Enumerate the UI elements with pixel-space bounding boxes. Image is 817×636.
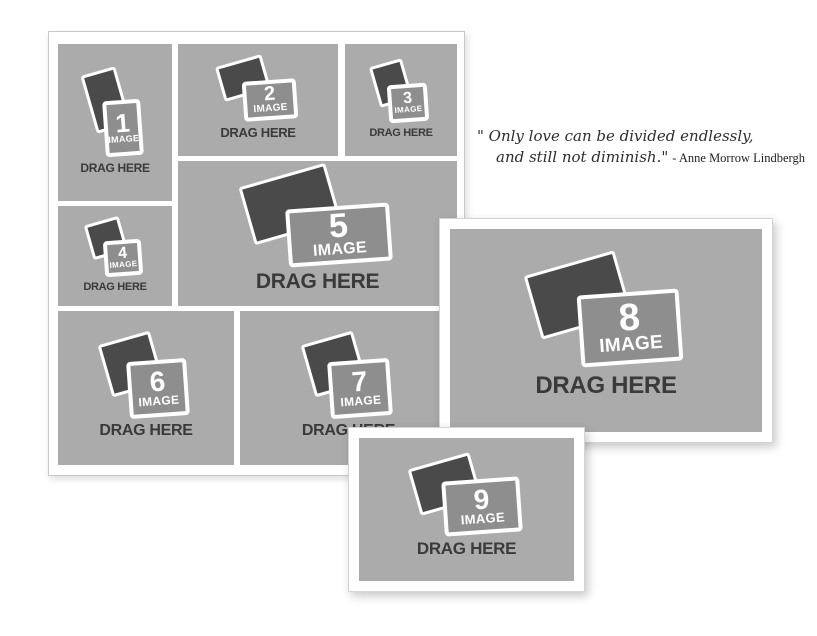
photo-front-icon: 7 IMAGE	[327, 357, 393, 418]
placeholder-6: 6 IMAGE DRAG HERE	[99, 337, 192, 440]
image-label: IMAGE	[109, 260, 137, 270]
drag-here-label: DRAG HERE	[535, 372, 676, 400]
placeholder-number: 5	[327, 211, 348, 241]
drop-zone-6[interactable]: 6 IMAGE DRAG HERE	[58, 311, 234, 465]
image-label: IMAGE	[340, 393, 382, 408]
placeholder-number: 8	[618, 301, 641, 335]
drop-zone-2[interactable]: 2 IMAGE DRAG HERE	[178, 44, 338, 156]
image-label: IMAGE	[312, 240, 367, 260]
photo-front-icon: 1 IMAGE	[102, 99, 144, 158]
photo-front-icon: 3 IMAGE	[387, 82, 430, 123]
placeholder-number: 1	[115, 111, 131, 134]
drop-zone-5[interactable]: 5 IMAGE DRAG HERE	[178, 161, 457, 306]
placeholder-1: 1 IMAGE DRAG HERE	[80, 70, 149, 175]
photo-stack-icon: 3 IMAGE	[374, 62, 428, 122]
drop-zone-9[interactable]: 9 IMAGE DRAG HERE	[359, 438, 574, 581]
image-label: IMAGE	[138, 393, 180, 408]
photo-panel-8: 8 IMAGE DRAG HERE	[439, 218, 773, 443]
photo-stack-icon: 4 IMAGE	[88, 220, 142, 276]
placeholder-7: 7 IMAGE DRAG HERE	[302, 337, 395, 440]
drag-here-label: DRAG HERE	[80, 161, 149, 175]
photo-front-icon: 6 IMAGE	[126, 357, 190, 418]
photo-stack-icon: 9 IMAGE	[413, 460, 521, 534]
photo-panel-9: 9 IMAGE DRAG HERE	[348, 427, 585, 592]
drop-zone-1[interactable]: 1 IMAGE DRAG HERE	[58, 44, 172, 201]
drag-here-label: DRAG HERE	[256, 270, 379, 294]
quote-line-2: and still not diminish."- Anne Morrow Li…	[496, 147, 797, 169]
placeholder-2: 2 IMAGE DRAG HERE	[219, 60, 297, 140]
placeholder-3: 3 IMAGE DRAG HERE	[369, 62, 432, 139]
photo-stack-icon: 7 IMAGE	[307, 337, 391, 417]
drop-zone-8[interactable]: 8 IMAGE DRAG HERE	[450, 229, 762, 432]
drag-here-label: DRAG HERE	[83, 281, 146, 293]
placeholder-5: 5 IMAGE DRAG HERE	[245, 174, 391, 294]
photo-front-icon: 4 IMAGE	[103, 238, 143, 277]
photo-stack-icon: 8 IMAGE	[531, 262, 681, 364]
photo-front-icon: 5 IMAGE	[285, 202, 393, 267]
image-label: IMAGE	[394, 105, 422, 115]
drag-here-label: DRAG HERE	[99, 422, 192, 440]
placeholder-8: 8 IMAGE DRAG HERE	[531, 262, 681, 400]
placeholder-number: 7	[350, 369, 367, 394]
placeholder-9: 9 IMAGE DRAG HERE	[413, 460, 521, 559]
collage-canvas: 1 IMAGE DRAG HERE 2 IMAGE DRAG HERE	[48, 31, 465, 476]
drop-zone-4[interactable]: 4 IMAGE DRAG HERE	[58, 206, 172, 306]
placeholder-number: 4	[118, 246, 128, 260]
quote-line-2-text: and still not diminish."	[496, 148, 668, 166]
placeholder-number: 9	[472, 487, 489, 512]
quote-attribution: - Anne Morrow Lindbergh	[672, 151, 805, 165]
quote-block: " Only love can be divided endlessly, an…	[477, 126, 797, 169]
drag-here-label: DRAG HERE	[220, 125, 295, 140]
drag-here-label: DRAG HERE	[417, 539, 516, 559]
photo-front-icon: 8 IMAGE	[577, 288, 684, 367]
image-label: IMAGE	[108, 134, 140, 145]
placeholder-4: 4 IMAGE DRAG HERE	[83, 220, 146, 293]
placeholder-number: 6	[149, 369, 166, 394]
image-label: IMAGE	[599, 332, 664, 355]
photo-front-icon: 2 IMAGE	[242, 78, 299, 122]
drop-zone-3[interactable]: 3 IMAGE DRAG HERE	[345, 44, 457, 156]
image-label: IMAGE	[460, 511, 505, 527]
photo-stack-icon: 5 IMAGE	[245, 174, 391, 264]
photo-stack-icon: 6 IMAGE	[104, 337, 188, 417]
quote-line-1: " Only love can be divided endlessly,	[477, 126, 797, 147]
placeholder-number: 2	[263, 86, 275, 104]
drag-here-label: DRAG HERE	[369, 127, 432, 139]
photo-stack-icon: 2 IMAGE	[219, 60, 297, 120]
placeholder-number: 3	[403, 91, 413, 105]
image-label: IMAGE	[253, 103, 288, 115]
photo-front-icon: 9 IMAGE	[441, 476, 523, 536]
photo-stack-icon: 1 IMAGE	[88, 70, 142, 156]
